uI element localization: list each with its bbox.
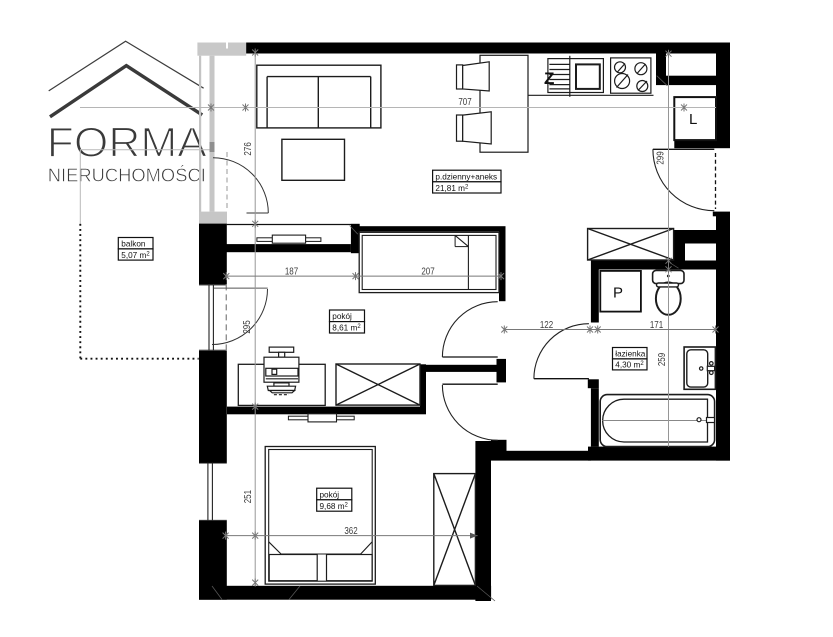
svg-text:299: 299 bbox=[655, 151, 666, 164]
svg-text:pokój: pokój bbox=[332, 312, 352, 321]
svg-text:4,30 m2: 4,30 m2 bbox=[615, 361, 644, 370]
svg-text:187: 187 bbox=[285, 266, 298, 277]
svg-text:NIERUCHOMOŚCI: NIERUCHOMOŚCI bbox=[48, 165, 206, 186]
svg-text:259: 259 bbox=[656, 353, 667, 366]
svg-text:295: 295 bbox=[241, 320, 252, 333]
svg-text:balkon: balkon bbox=[121, 240, 146, 249]
svg-text:P: P bbox=[613, 285, 623, 302]
svg-text:251: 251 bbox=[242, 490, 253, 503]
svg-text:8,61 m2: 8,61 m2 bbox=[332, 324, 361, 333]
svg-text:Z: Z bbox=[544, 69, 554, 88]
svg-text:171: 171 bbox=[650, 319, 663, 330]
svg-text:9,68 m2: 9,68 m2 bbox=[320, 502, 349, 511]
svg-text:707: 707 bbox=[458, 96, 471, 107]
svg-text:pokój: pokój bbox=[320, 490, 340, 499]
svg-text:122: 122 bbox=[540, 319, 553, 330]
svg-text:FORMA: FORMA bbox=[47, 119, 207, 166]
svg-text:276: 276 bbox=[242, 142, 253, 155]
svg-text:207: 207 bbox=[421, 266, 434, 277]
svg-text:p.dzienny+aneks: p.dzienny+aneks bbox=[435, 172, 497, 181]
svg-text:362: 362 bbox=[344, 525, 357, 536]
svg-text:5,07 m2: 5,07 m2 bbox=[121, 251, 150, 260]
svg-text:łazienka: łazienka bbox=[615, 349, 645, 358]
svg-text:L: L bbox=[689, 111, 697, 128]
svg-text:21,81 m2: 21,81 m2 bbox=[435, 184, 469, 193]
